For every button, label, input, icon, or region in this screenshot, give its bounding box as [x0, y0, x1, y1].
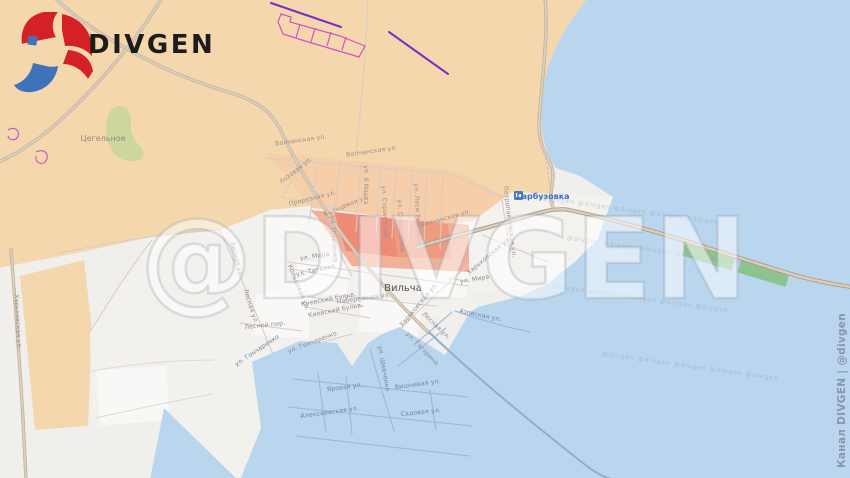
logo-wordmark: DIVGEN [88, 30, 215, 60]
land-wedge [20, 260, 92, 430]
watermark-text: @DIVGEN [140, 195, 750, 325]
channel-credit: Канал DIVGEN | @divgen [836, 313, 848, 468]
settlement-label: Цегельное [80, 134, 125, 143]
map-canvas[interactable]: Волчанская ул.Волчанская ул.Лозовая ул.П… [0, 0, 850, 478]
map-svg[interactable]: Волчанская ул.Волчанская ул.Лозовая ул.П… [0, 0, 850, 478]
street-label: Харьковская ул. [13, 294, 23, 350]
